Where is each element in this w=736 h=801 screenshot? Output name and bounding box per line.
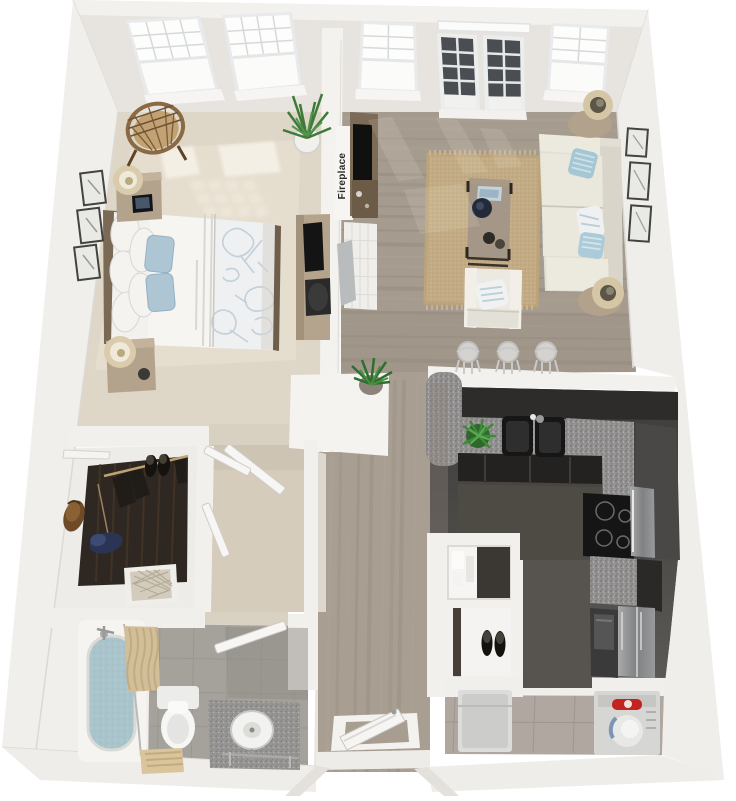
svg-text:Fireplace: Fireplace <box>337 153 348 200</box>
